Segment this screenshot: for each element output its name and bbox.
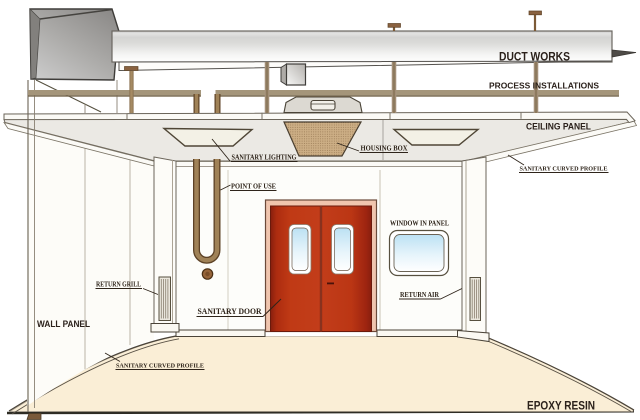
svg-text:POINT OF USE: POINT OF USE <box>231 183 276 191</box>
svg-text:PROCESS INSTALLATIONS: PROCESS INSTALLATIONS <box>489 81 599 91</box>
svg-text:EPOXY RESIN: EPOXY RESIN <box>527 401 595 413</box>
svg-text:WALL PANEL: WALL PANEL <box>37 319 90 330</box>
svg-text:RETURN AIR: RETURN AIR <box>400 291 440 299</box>
svg-text:CEILING PANEL: CEILING PANEL <box>526 122 591 133</box>
svg-text:SANITARY CURVED PROFILE: SANITARY CURVED PROFILE <box>116 363 204 370</box>
svg-text:SANITARY LIGHTING: SANITARY LIGHTING <box>232 154 297 162</box>
svg-text:RETURN GRILL: RETURN GRILL <box>96 281 141 289</box>
svg-text:WINDOW IN PANEL: WINDOW IN PANEL <box>390 220 449 228</box>
svg-text:HOUSING BOX: HOUSING BOX <box>361 145 408 153</box>
svg-text:DUCT WORKS: DUCT WORKS <box>499 50 570 64</box>
svg-text:SANITARY DOOR: SANITARY DOOR <box>198 306 263 316</box>
svg-text:SANITARY CURVED PROFILE: SANITARY CURVED PROFILE <box>520 166 608 173</box>
